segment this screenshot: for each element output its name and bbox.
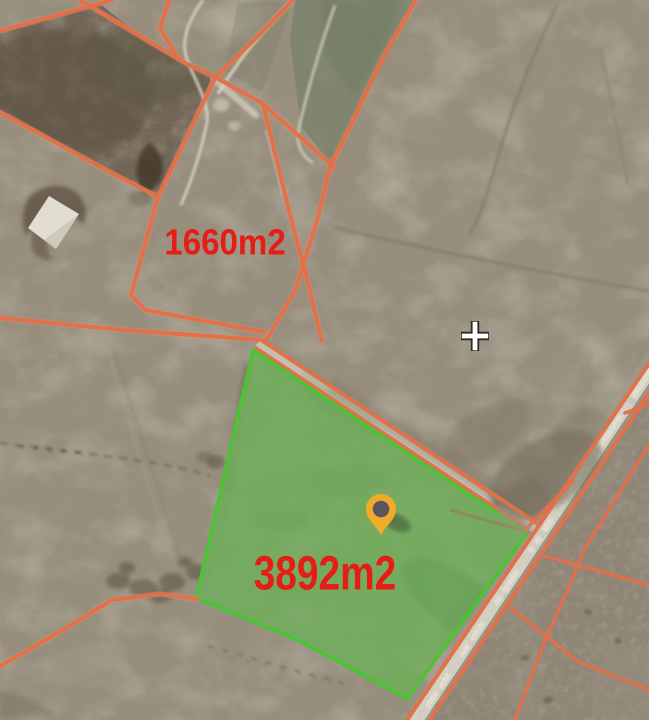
svg-text:3892m2: 3892m2 <box>254 547 397 601</box>
svg-text:1660m2: 1660m2 <box>164 222 285 263</box>
